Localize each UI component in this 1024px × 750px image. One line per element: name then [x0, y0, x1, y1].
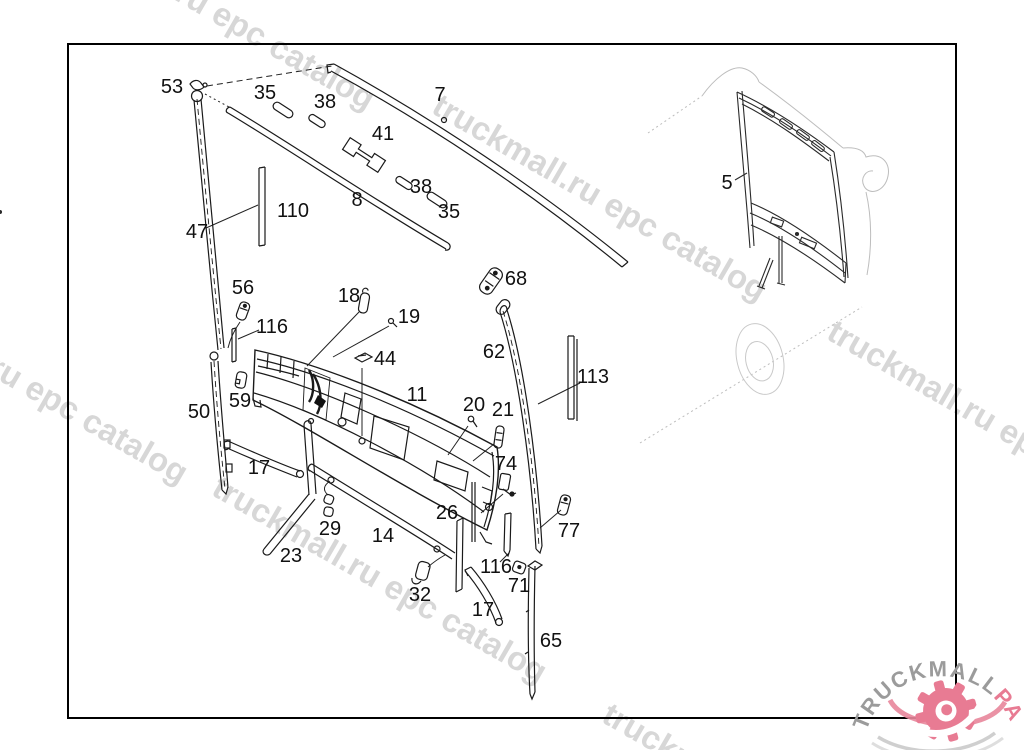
- part-label-53[interactable]: 53: [161, 77, 183, 97]
- part-label-29[interactable]: 29: [319, 519, 341, 539]
- part-label-65[interactable]: 65: [540, 631, 562, 651]
- part-label-5[interactable]: 5: [721, 173, 732, 193]
- part-label-62[interactable]: 62: [483, 342, 505, 362]
- part-label-50[interactable]: 50: [188, 402, 210, 422]
- part-label-23[interactable]: 23: [280, 546, 302, 566]
- part-label-110[interactable]: 110: [277, 201, 309, 221]
- part-label-35-2[interactable]: 35: [438, 202, 460, 222]
- part-label-68[interactable]: 68: [505, 269, 527, 289]
- part-label-47[interactable]: 47: [186, 222, 208, 242]
- part-label-116-2[interactable]: 116: [480, 557, 512, 577]
- part-label-56[interactable]: 56: [232, 278, 254, 298]
- part-label-11[interactable]: 11: [407, 385, 428, 405]
- part-label-21[interactable]: 21: [492, 400, 514, 420]
- part-label-19[interactable]: 19: [398, 307, 420, 327]
- part-label-116[interactable]: 116: [256, 317, 288, 337]
- part-label-17-2[interactable]: 17: [472, 600, 494, 620]
- part-label-38-2[interactable]: 38: [410, 177, 432, 197]
- part-label-74[interactable]: 74: [495, 454, 517, 474]
- part-label-38[interactable]: 38: [314, 92, 336, 112]
- parts-diagram-page: truckmall.ru epc catalog truckmall.ru ep…: [0, 0, 1024, 750]
- part-label-113[interactable]: 113: [577, 367, 609, 387]
- part-label-26[interactable]: 26: [436, 503, 458, 523]
- part-label-17[interactable]: 17: [248, 458, 270, 478]
- part-label-77[interactable]: 77: [558, 521, 580, 541]
- part-label-44[interactable]: 44: [374, 349, 396, 369]
- part-label-7[interactable]: 7: [434, 85, 445, 105]
- part-label-32[interactable]: 32: [409, 585, 431, 605]
- part-label-18[interactable]: 18: [338, 286, 360, 306]
- part-label-8[interactable]: 8: [351, 190, 362, 210]
- part-label-41[interactable]: 41: [372, 124, 394, 144]
- part-label-14[interactable]: 14: [372, 526, 394, 546]
- part-label-59[interactable]: 59: [229, 391, 251, 411]
- part-label-71[interactable]: 71: [508, 576, 530, 596]
- part-callouts: 53 35 38 41 7 8 38 35 47 110 68 56 18 19…: [0, 0, 1024, 750]
- part-label-35[interactable]: 35: [254, 83, 276, 103]
- part-label-20[interactable]: 20: [463, 395, 485, 415]
